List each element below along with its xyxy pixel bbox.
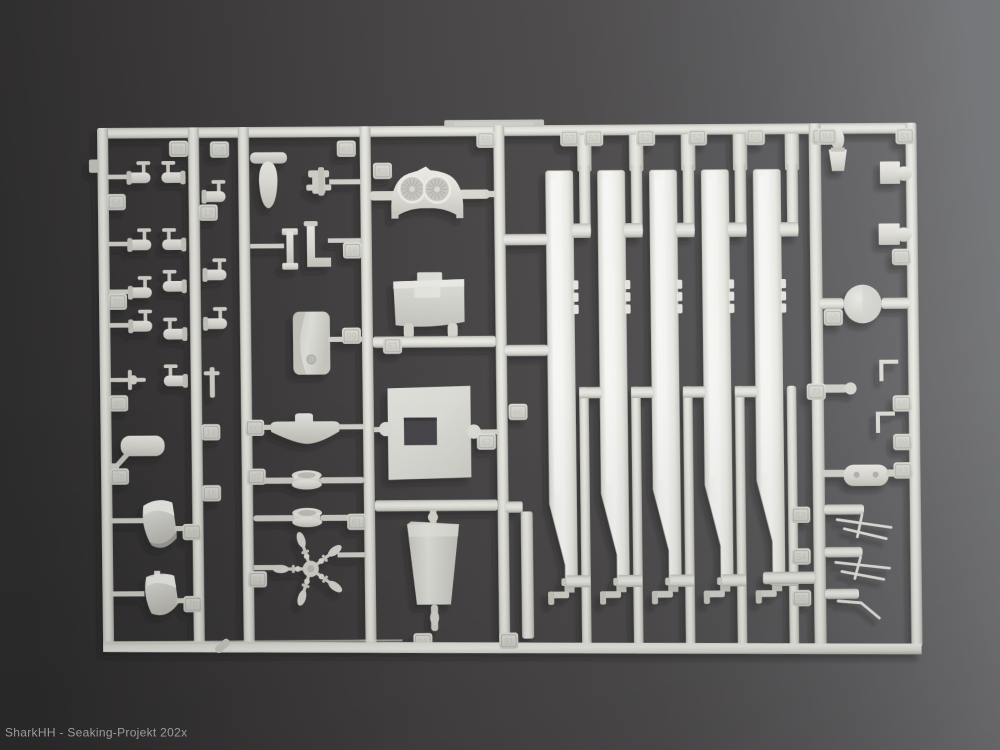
svg-text:SharkHH - Seaking-Projekt 202x: SharkHH - Seaking-Projekt 202x	[5, 726, 187, 740]
